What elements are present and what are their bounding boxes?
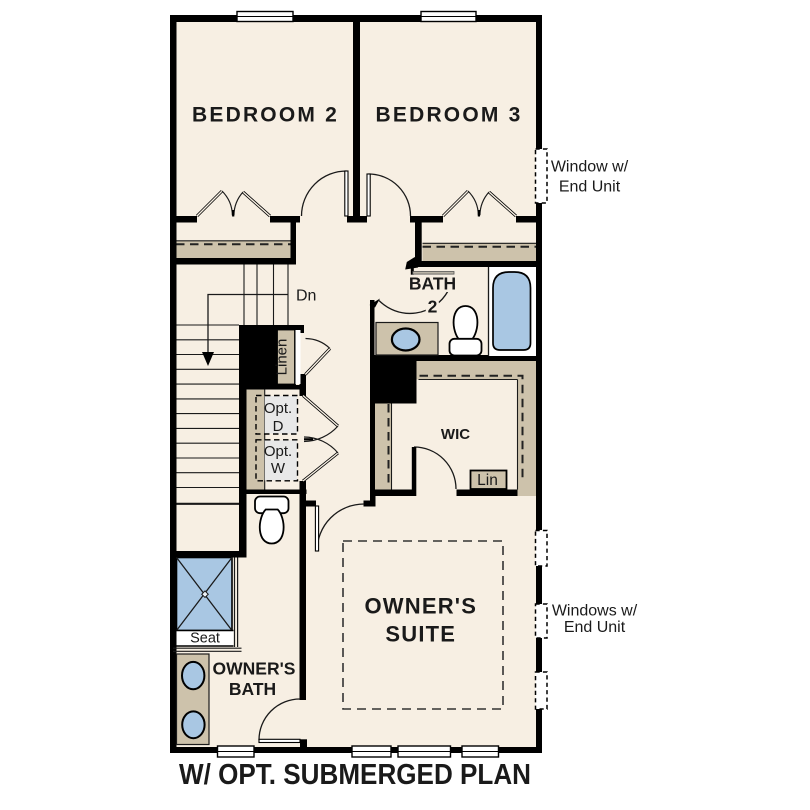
svg-text:Opt.: Opt. [264,400,292,417]
svg-text:SUITE: SUITE [385,622,456,647]
svg-text:BATH: BATH [229,679,276,699]
svg-text:End Unit: End Unit [564,619,626,636]
svg-text:BEDROOM 2: BEDROOM 2 [192,104,339,127]
svg-text:OWNER'S: OWNER'S [364,593,477,618]
svg-text:D: D [273,418,284,435]
svg-text:Windows w/: Windows w/ [552,603,638,620]
svg-text:Lin: Lin [477,472,498,489]
svg-text:End Unit: End Unit [559,179,621,196]
svg-text:Seat: Seat [190,631,220,647]
svg-text:BATH: BATH [409,274,456,294]
svg-text:BEDROOM 3: BEDROOM 3 [376,104,523,127]
svg-text:Dn: Dn [296,288,316,305]
svg-text:OWNER'S: OWNER'S [213,659,296,679]
svg-text:WIC: WIC [441,426,470,443]
svg-text:Linen: Linen [274,339,291,376]
svg-text:W: W [271,460,286,477]
svg-text:2: 2 [428,297,438,317]
svg-text:Window w/: Window w/ [551,159,629,176]
svg-text:W/ OPT. SUBMERGED PLAN: W/ OPT. SUBMERGED PLAN [179,759,531,791]
svg-text:Opt.: Opt. [264,443,292,460]
